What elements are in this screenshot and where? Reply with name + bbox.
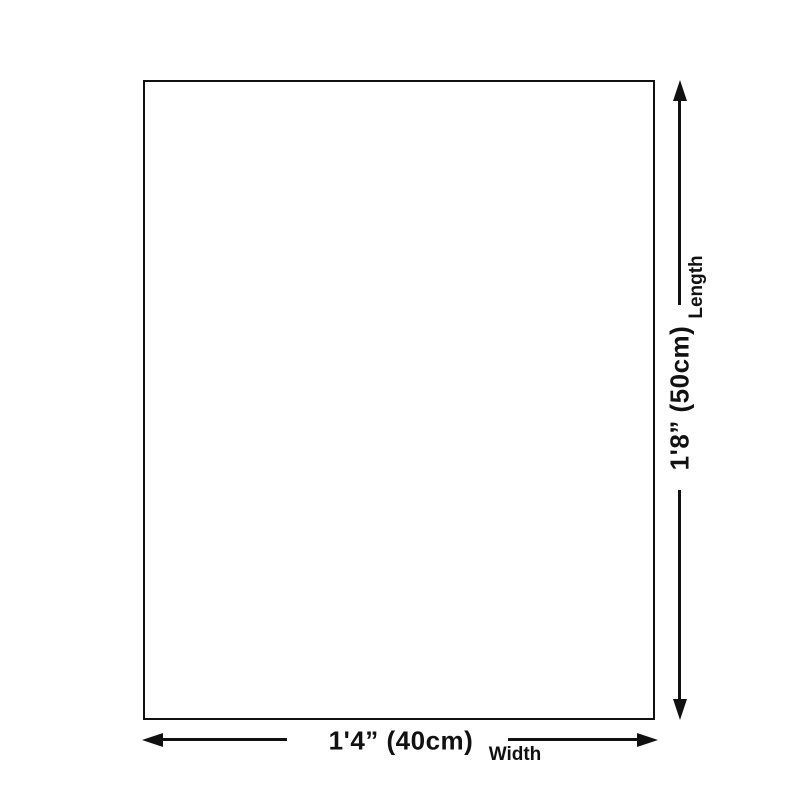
product-outline <box>143 80 655 720</box>
width-arrow-shaft-left <box>159 738 287 741</box>
length-arrow-shaft-bottom <box>678 490 681 702</box>
width-axis-label: Width <box>489 744 542 766</box>
dimension-diagram: 1'8” (50cm) Length 1'4” (40cm) Width <box>0 0 800 800</box>
length-arrow-shaft-top <box>678 98 681 305</box>
arrowhead-right-icon <box>637 733 658 747</box>
arrowhead-down-icon <box>673 699 687 720</box>
length-value-label: 1'8” (50cm) <box>665 326 696 471</box>
width-arrow-shaft-right <box>508 738 637 741</box>
length-axis-label: Length <box>686 255 708 318</box>
width-value-label: 1'4” (40cm) <box>329 726 474 757</box>
